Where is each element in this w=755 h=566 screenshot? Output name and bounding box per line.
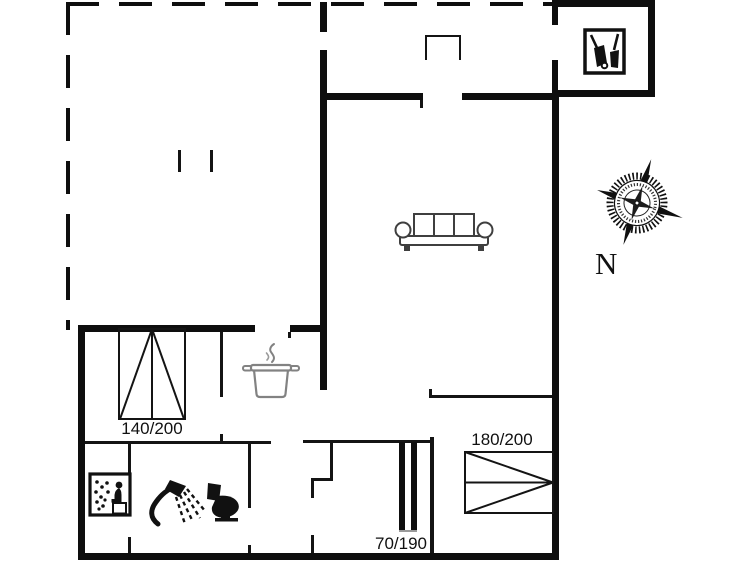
wall-segment bbox=[78, 553, 559, 560]
annex-wall-segment bbox=[648, 0, 655, 97]
bed-size-label: 140/200 bbox=[107, 419, 197, 439]
double-bed-left-icon bbox=[118, 328, 186, 420]
wall-segment bbox=[128, 537, 131, 553]
bed-size-label: 180/200 bbox=[458, 430, 546, 450]
door-jamb bbox=[288, 332, 291, 338]
compass-north-label: N bbox=[595, 246, 617, 282]
shower-icon bbox=[148, 478, 208, 526]
entrance-step-icon bbox=[459, 35, 461, 60]
compass-rose-icon bbox=[589, 161, 689, 247]
bunk-bed-icon bbox=[399, 442, 405, 532]
window-tick bbox=[178, 150, 181, 172]
wall-segment bbox=[248, 545, 251, 553]
sauna-icon bbox=[88, 472, 132, 517]
annex-wall-segment bbox=[552, 60, 558, 90]
wall-segment bbox=[330, 441, 333, 481]
sofa-icon bbox=[394, 206, 494, 252]
floor-plan: 140/200 180/200 70/190 bbox=[0, 0, 755, 566]
terrace-dashed-line-top bbox=[66, 2, 553, 6]
wall-segment bbox=[320, 50, 327, 390]
annex-wall-segment bbox=[552, 7, 558, 25]
entrance-step-icon bbox=[425, 35, 427, 60]
annex-wall-segment bbox=[552, 0, 655, 7]
double-bed-right-icon bbox=[464, 451, 554, 514]
wall-segment bbox=[85, 441, 271, 444]
wall-segment bbox=[311, 535, 314, 553]
bunk-bed-icon bbox=[399, 530, 417, 532]
wall-segment bbox=[322, 93, 423, 100]
bunk-bed-icon bbox=[411, 442, 417, 532]
annex-wall-segment bbox=[552, 90, 655, 97]
wall-segment bbox=[311, 481, 314, 498]
wall-segment bbox=[220, 332, 223, 397]
terrace-dashed-line-left bbox=[66, 2, 70, 330]
wall-segment bbox=[311, 478, 333, 481]
wall-segment bbox=[429, 395, 552, 398]
cooking-pot-icon bbox=[242, 340, 300, 400]
entrance-step-icon bbox=[425, 35, 461, 37]
wall-segment bbox=[462, 93, 552, 100]
wall-segment bbox=[78, 325, 85, 560]
garden-tools-icon bbox=[583, 28, 626, 75]
toilet-icon bbox=[202, 483, 242, 523]
wall-segment bbox=[220, 434, 223, 441]
door-jamb bbox=[420, 100, 423, 108]
bed-size-label: 70/190 bbox=[357, 534, 445, 554]
wall-segment bbox=[320, 2, 327, 32]
door-jamb bbox=[429, 389, 432, 395]
wall-segment bbox=[248, 444, 251, 508]
window-tick bbox=[210, 150, 213, 172]
